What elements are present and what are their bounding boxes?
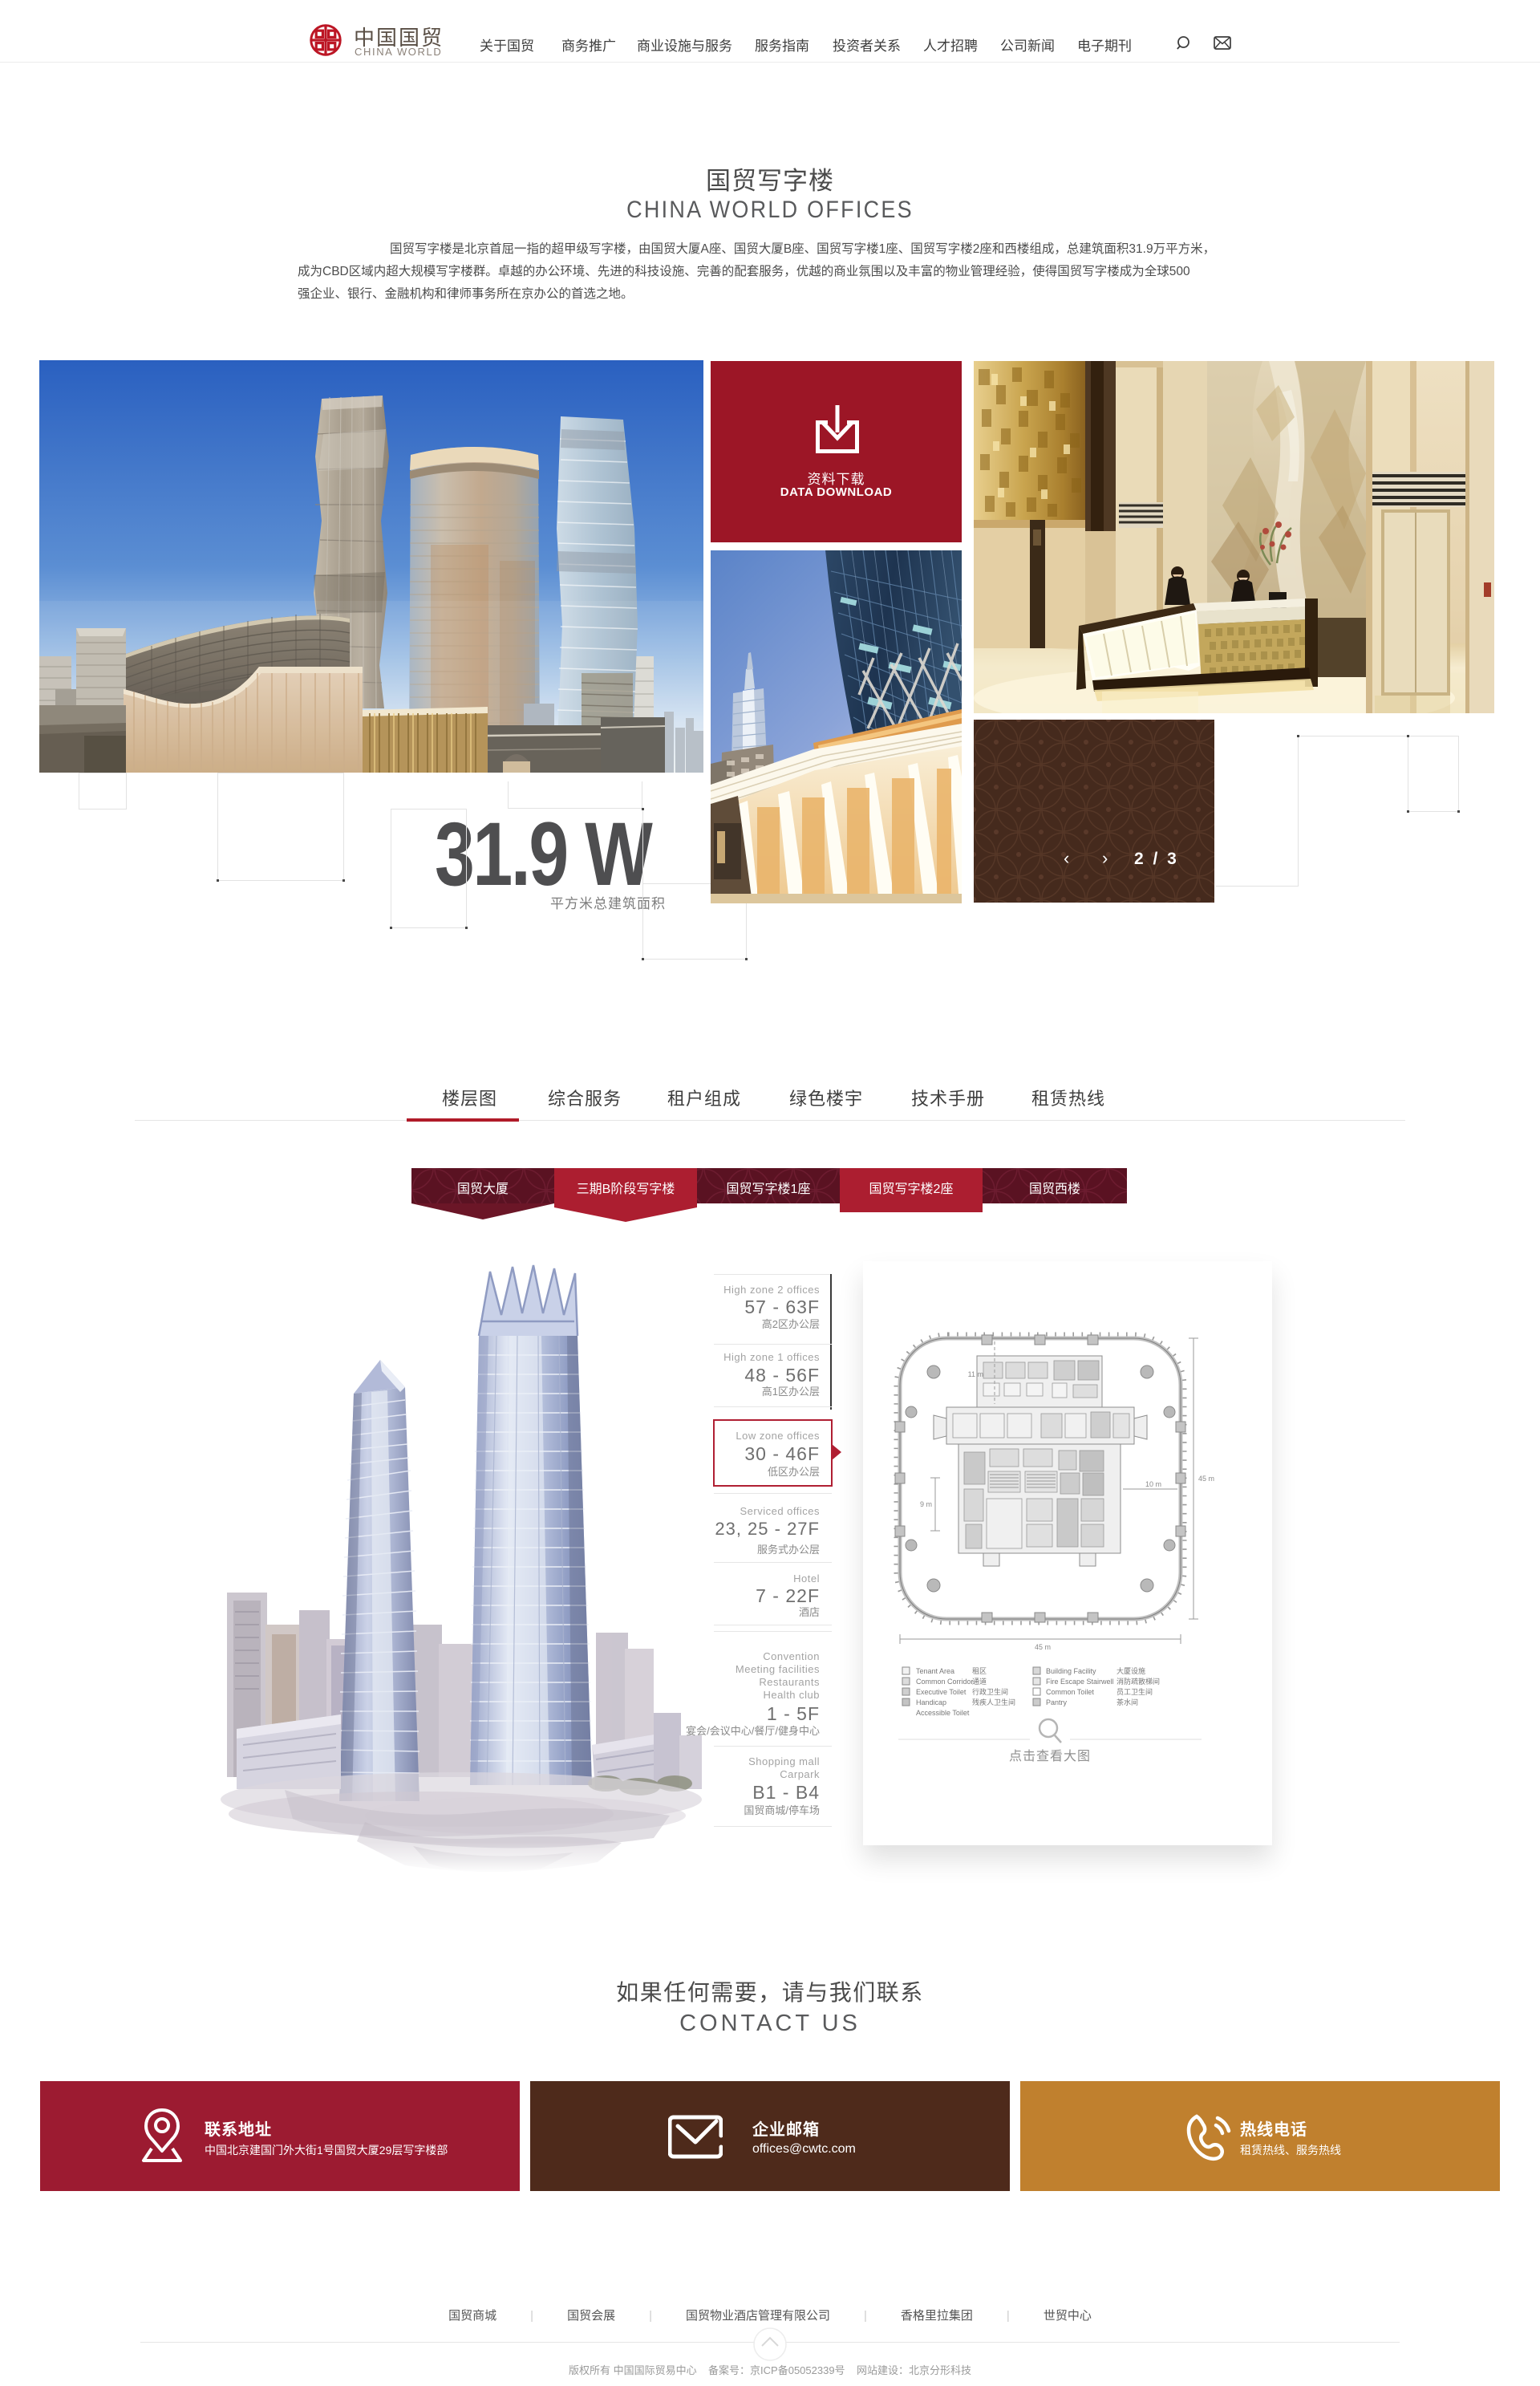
svg-text:Executive Toilet: Executive Toilet xyxy=(916,1688,967,1696)
svg-text:员工卫生间: 员工卫生间 xyxy=(1116,1687,1153,1696)
svg-text:茶水间: 茶水间 xyxy=(1116,1698,1138,1706)
svg-text:Fire Escape Stairwell: Fire Escape Stairwell xyxy=(1046,1678,1114,1686)
svg-text:租区: 租区 xyxy=(972,1667,987,1675)
svg-text:Accessible Toilet: Accessible Toilet xyxy=(916,1709,970,1717)
svg-text:Handicap: Handicap xyxy=(916,1698,946,1706)
svg-text:9 m: 9 m xyxy=(920,1500,932,1508)
svg-text:大厦设施: 大厦设施 xyxy=(1116,1666,1145,1675)
svg-text:点击查看大图: 点击查看大图 xyxy=(1009,1749,1091,1763)
svg-text:Common Corridor: Common Corridor xyxy=(916,1678,974,1686)
svg-text:11 m: 11 m xyxy=(968,1370,983,1378)
svg-text:消防疏散梯间: 消防疏散梯间 xyxy=(1116,1677,1160,1686)
svg-text:45 m: 45 m xyxy=(1198,1475,1214,1483)
svg-text:Building Facility: Building Facility xyxy=(1046,1667,1096,1675)
svg-text:10 m: 10 m xyxy=(1145,1480,1161,1488)
svg-text:通道: 通道 xyxy=(972,1677,987,1686)
svg-text:Pantry: Pantry xyxy=(1046,1698,1068,1706)
svg-text:残疾人卫生间: 残疾人卫生间 xyxy=(972,1698,1015,1706)
svg-text:行政卫生间: 行政卫生间 xyxy=(972,1687,1008,1696)
svg-text:Common Toilet: Common Toilet xyxy=(1046,1688,1094,1696)
svg-text:Tenant Area: Tenant Area xyxy=(916,1667,954,1675)
svg-text:45 m: 45 m xyxy=(1035,1643,1051,1651)
